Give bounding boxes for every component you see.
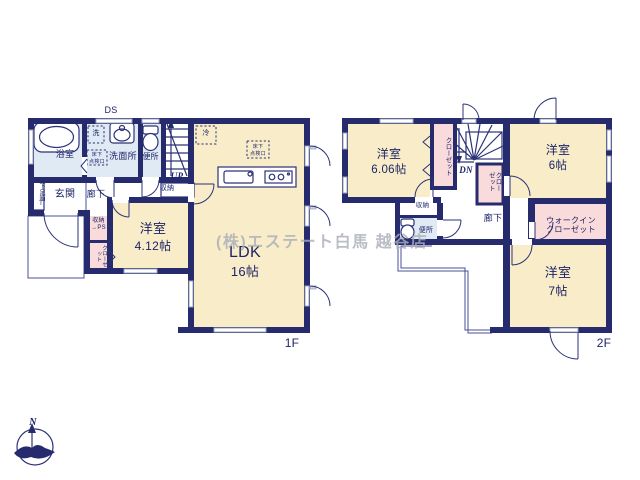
- stairs-2f: [453, 124, 503, 164]
- bath-window: [29, 130, 33, 164]
- label-compass-north: N: [26, 417, 40, 429]
- bathtub-icon: [34, 122, 79, 152]
- sink-icon: [110, 123, 134, 143]
- watermark-text: (株)エステート白馬 越谷店: [216, 234, 446, 253]
- label-up: UP: [164, 171, 190, 182]
- compass-icon: [14, 423, 55, 465]
- label-underfloor-hatch-laundry: 床下 点検口: [87, 152, 107, 165]
- bedroom606-west-window-1: [343, 133, 347, 149]
- label-wic: ウォークイン クローゼット: [535, 216, 607, 235]
- entrance-door-arc: [44, 213, 78, 247]
- compass-bird-shape: [14, 445, 55, 459]
- bedroom6-top-window: [540, 119, 556, 123]
- label-underfloor-hatch-ldk: 床下 点検口: [247, 144, 269, 157]
- label-toilet-1f: 便所: [139, 152, 162, 161]
- stair-hall-top-window: [462, 119, 476, 123]
- label-stair-storage: 収納: [150, 185, 184, 193]
- label-bedroom1-2f-size: 6.06帖: [352, 164, 426, 178]
- roof-outline: [398, 243, 492, 333]
- label-floor2-tag: 2F: [588, 336, 620, 350]
- bedroom6-east-window-2: [607, 156, 611, 182]
- label-hallway-2f: 廊下: [474, 213, 512, 224]
- bedroom606-west-window-2: [343, 177, 347, 193]
- ds-window: [96, 119, 132, 123]
- label-dn: DN: [452, 165, 480, 176]
- label-fridge: 冷: [196, 130, 216, 138]
- label-bedroom-1f-size: 4.12帖: [118, 239, 188, 253]
- floorplan-canvas: DS 浴室 洗 床下 点検口 洗面所 便所 UP 収納 玄関 廊下 下足箱T 収…: [0, 0, 640, 480]
- ldk-west-window: [189, 281, 193, 307]
- ldk-east-window-2: [305, 206, 309, 226]
- bedroom1f-window: [124, 269, 157, 273]
- ldk-south-window: [214, 328, 266, 332]
- label-closet-1f: クローゼット: [91, 244, 106, 268]
- label-laundry: 洗面所: [105, 151, 141, 162]
- label-storage-ps: 収納 →PS: [90, 218, 107, 232]
- stairs-1f: [166, 119, 188, 176]
- label-bedroom2-2f: 洋室: [523, 143, 593, 157]
- label-bedroom2-2f-size: 6帖: [523, 160, 593, 174]
- label-hallway-1f: 廊下: [78, 189, 114, 200]
- ldk-east-window-3: [305, 286, 309, 306]
- label-bedroom-1f: 洋室: [118, 221, 188, 236]
- toilet-window: [142, 119, 159, 123]
- label-bath: 浴室: [43, 149, 87, 160]
- bedroom6-east-window-1: [607, 130, 611, 150]
- shutter-arcs: [310, 146, 330, 306]
- bedroom7-south-window: [550, 328, 578, 332]
- label-washer: 洗: [88, 130, 104, 138]
- kitchen-counter-icon: [218, 167, 296, 187]
- label-bedroom1-2f: 洋室: [352, 147, 426, 161]
- toilet-icon-1f: [143, 126, 158, 151]
- ldk-east-window-1: [305, 146, 309, 166]
- label-ldk-size: 16帖: [210, 264, 280, 279]
- bedroom606-top-window: [380, 119, 413, 123]
- label-floor1-tag: 1F: [276, 336, 308, 350]
- label-closet-2f-left: クローゼット: [437, 128, 450, 184]
- label-bedroom3-2f-size: 7帖: [523, 284, 593, 298]
- label-storage-2f: 収納: [406, 202, 439, 210]
- label-ds: DS: [96, 105, 126, 116]
- label-bedroom3-2f: 洋室: [523, 265, 593, 280]
- label-shoe-box: 下足箱T: [32, 180, 44, 209]
- label-closet-2f-mid: クローゼット: [479, 170, 500, 194]
